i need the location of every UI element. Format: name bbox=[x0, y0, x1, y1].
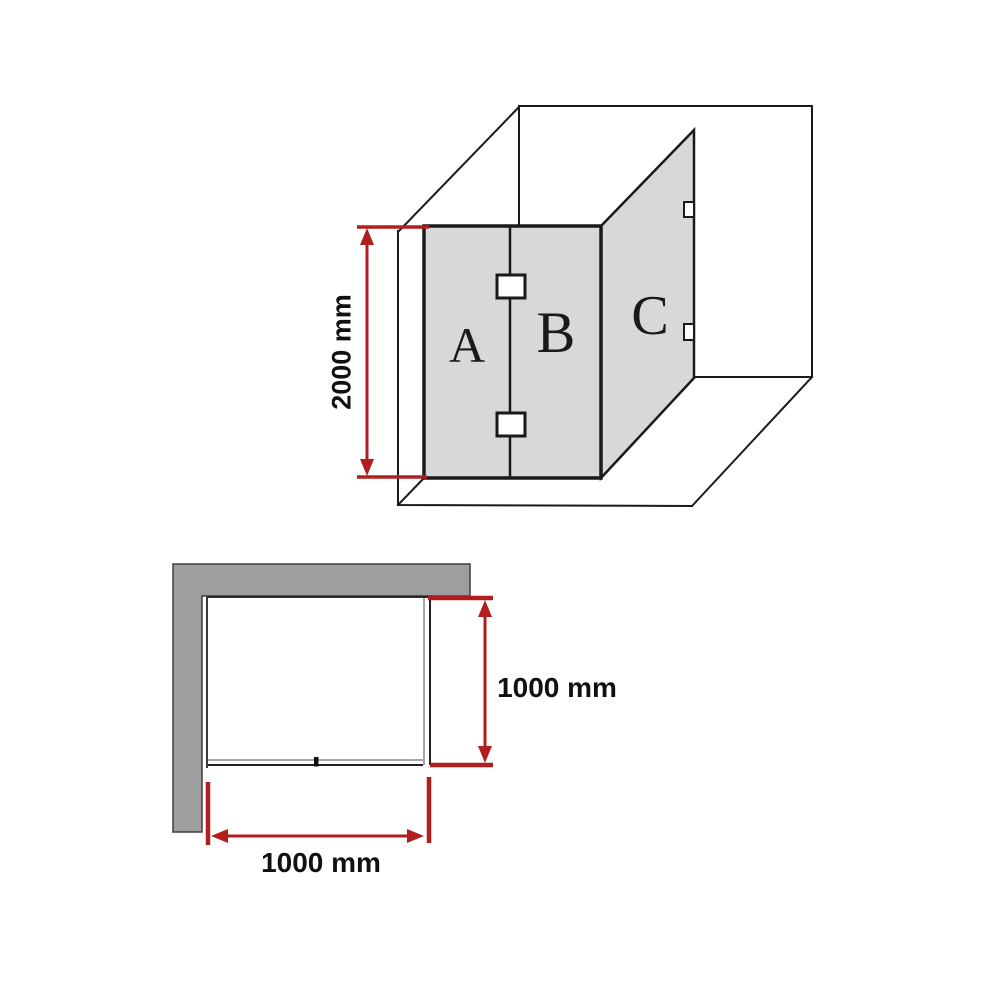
diagram-canvas: A B C 2000 mm 1000 mm 1000 mm bbox=[0, 0, 1000, 1000]
panel-a-label: A bbox=[449, 320, 485, 370]
wall-bracket-top bbox=[684, 202, 694, 217]
height-dimension-label: 2000 mm bbox=[327, 294, 358, 410]
depth-arrow-up bbox=[478, 600, 492, 617]
panel-junction-tick bbox=[314, 757, 319, 767]
depth-dimension-label: 1000 mm bbox=[497, 672, 617, 704]
perspective-view bbox=[357, 106, 812, 506]
width-dimension-label: 1000 mm bbox=[261, 847, 381, 879]
height-arrow-up bbox=[360, 228, 374, 245]
depth-arrow-down bbox=[478, 746, 492, 763]
hinge-bottom bbox=[497, 413, 525, 436]
width-arrow-right bbox=[407, 829, 424, 843]
hinge-top bbox=[497, 275, 525, 298]
panel-b-label: B bbox=[537, 304, 576, 362]
width-dimension bbox=[208, 777, 429, 845]
width-arrow-left bbox=[211, 829, 228, 843]
height-dimension bbox=[357, 227, 429, 477]
depth-dimension bbox=[428, 598, 493, 765]
plan-view bbox=[173, 564, 493, 845]
diagram-linework bbox=[0, 0, 1000, 1000]
wall-bracket-bottom bbox=[684, 324, 694, 340]
height-arrow-down bbox=[360, 459, 374, 476]
wall-l-shape bbox=[173, 564, 470, 832]
panel-c-label: C bbox=[631, 288, 668, 344]
